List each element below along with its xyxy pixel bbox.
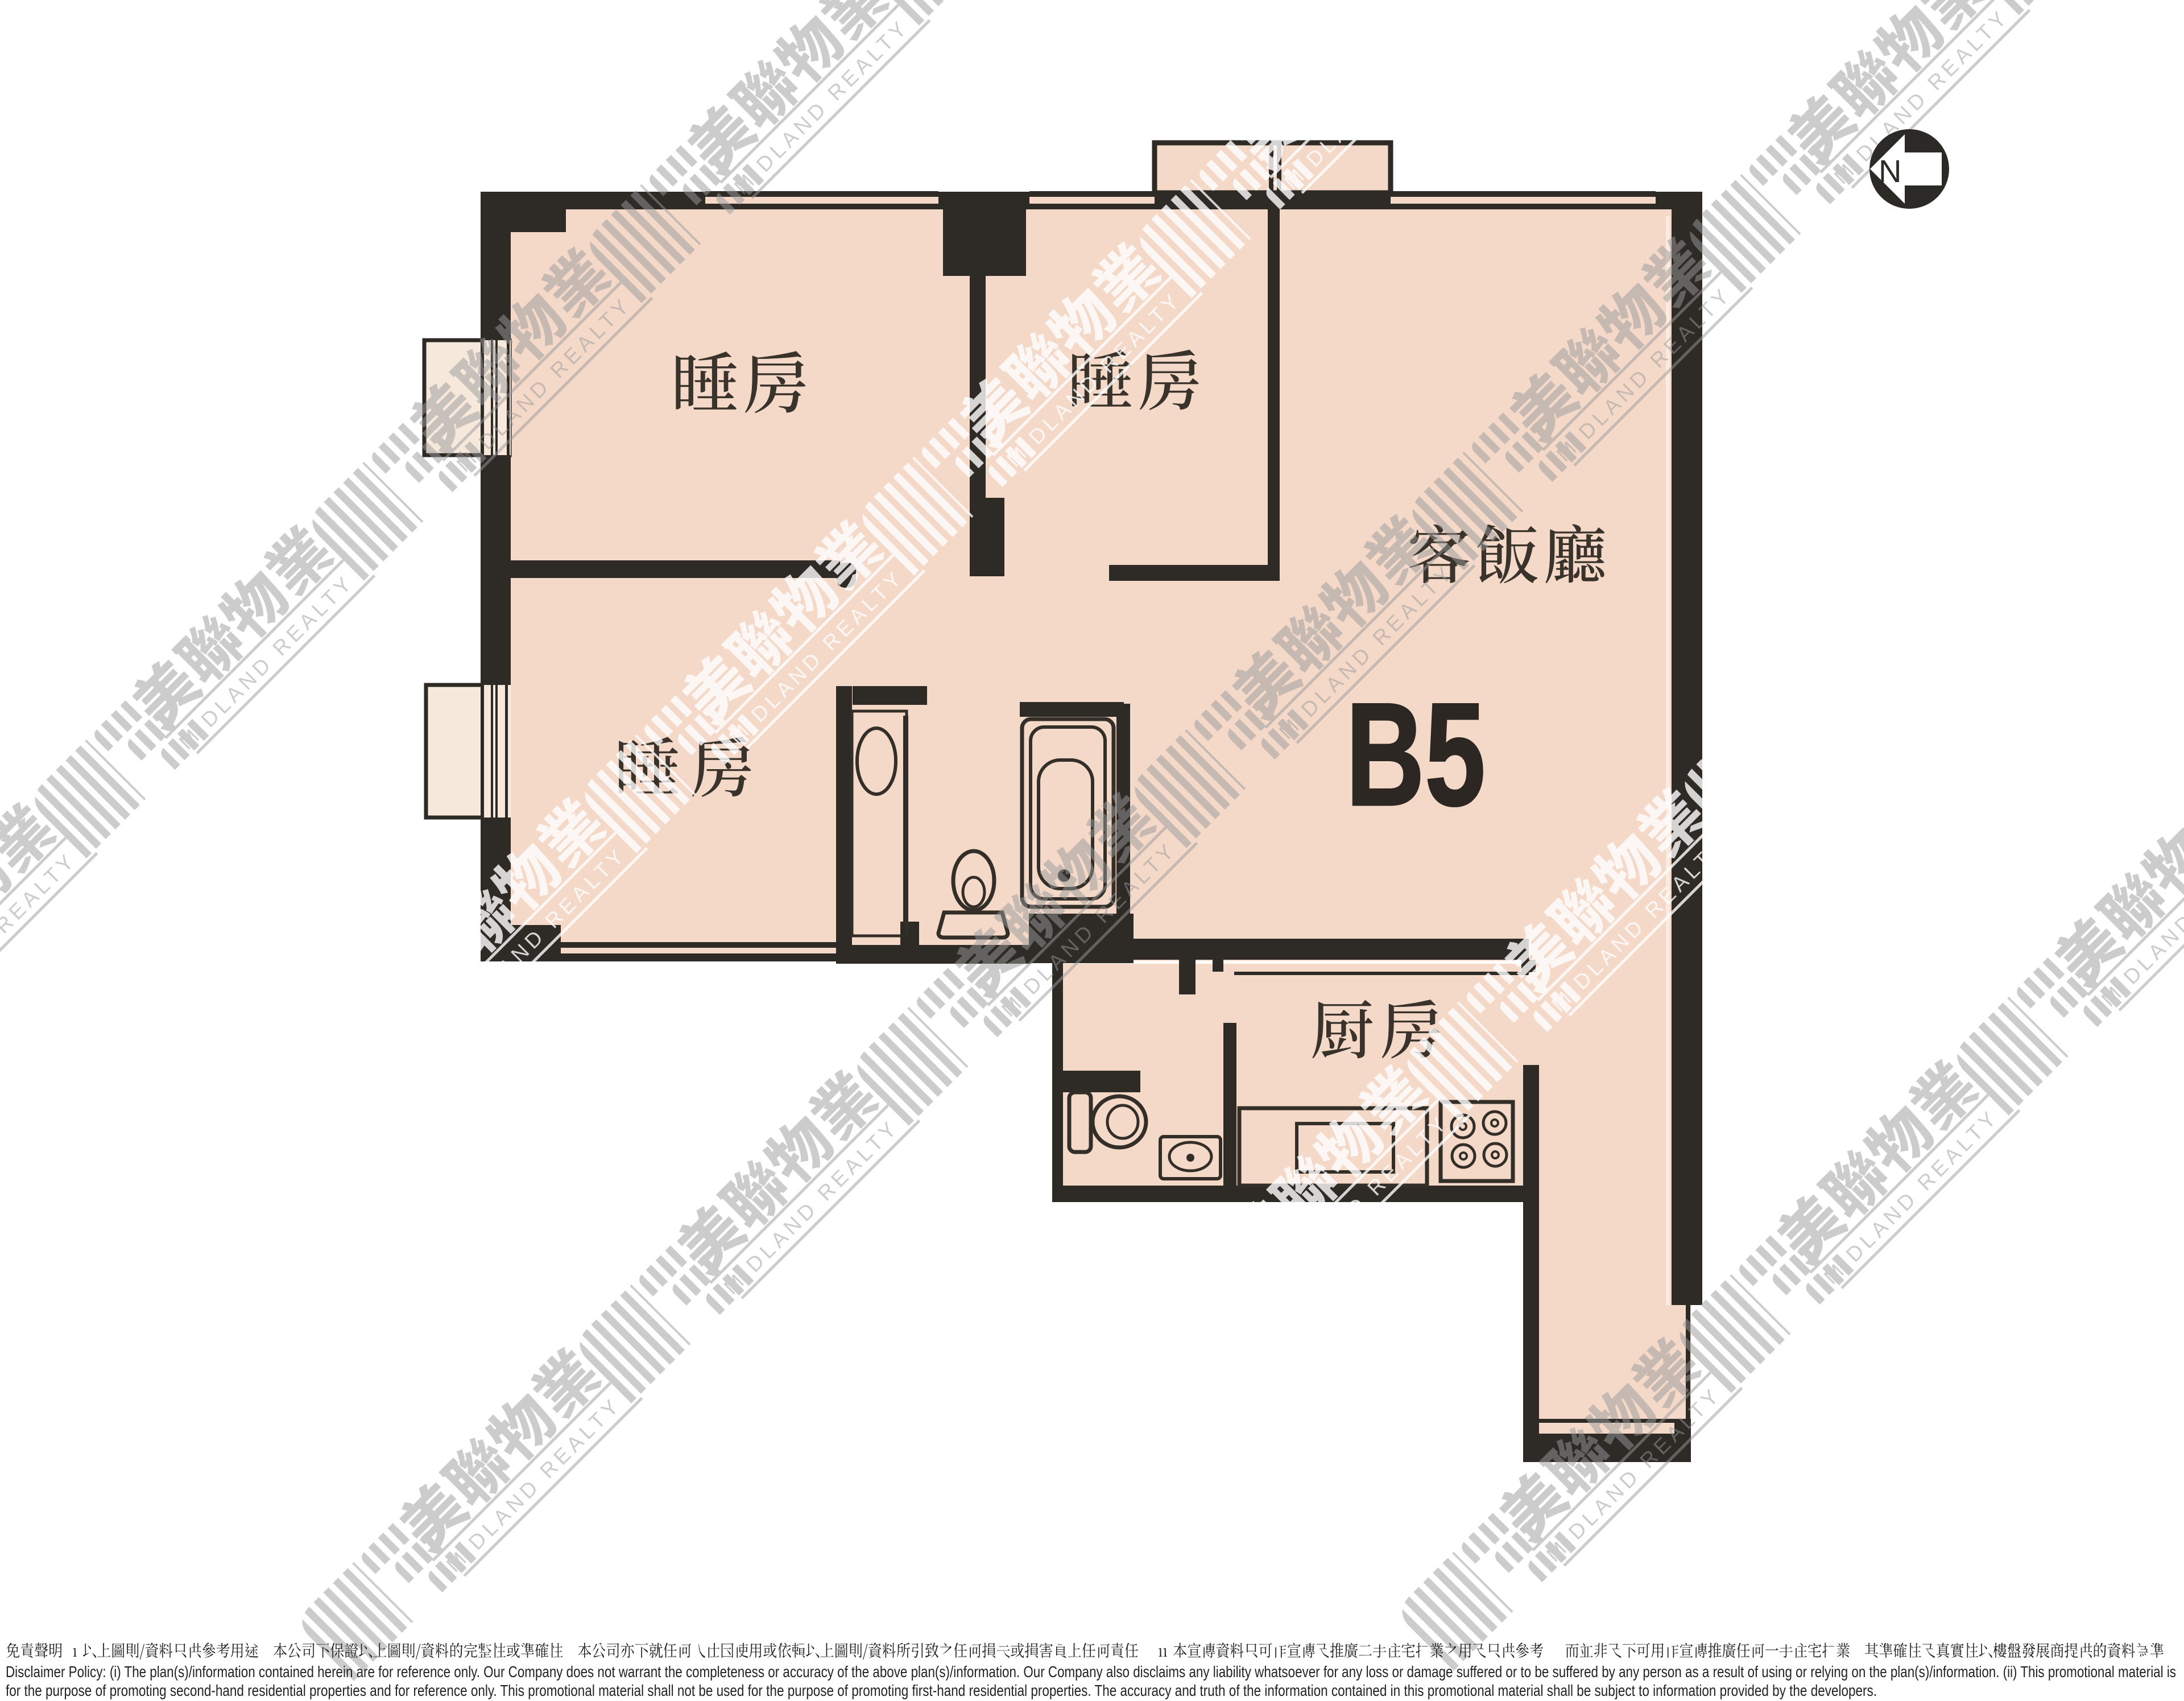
svg-text:N: N — [1879, 153, 1901, 189]
svg-text:B5: B5 — [1346, 672, 1486, 836]
svg-text:for the purpose of promoting s: for the purpose of promoting second-hand… — [6, 1682, 1877, 1699]
svg-text:Disclaimer Policy: (i) The pla: Disclaimer Policy: (i) The plan(s)/infor… — [6, 1663, 2176, 1681]
